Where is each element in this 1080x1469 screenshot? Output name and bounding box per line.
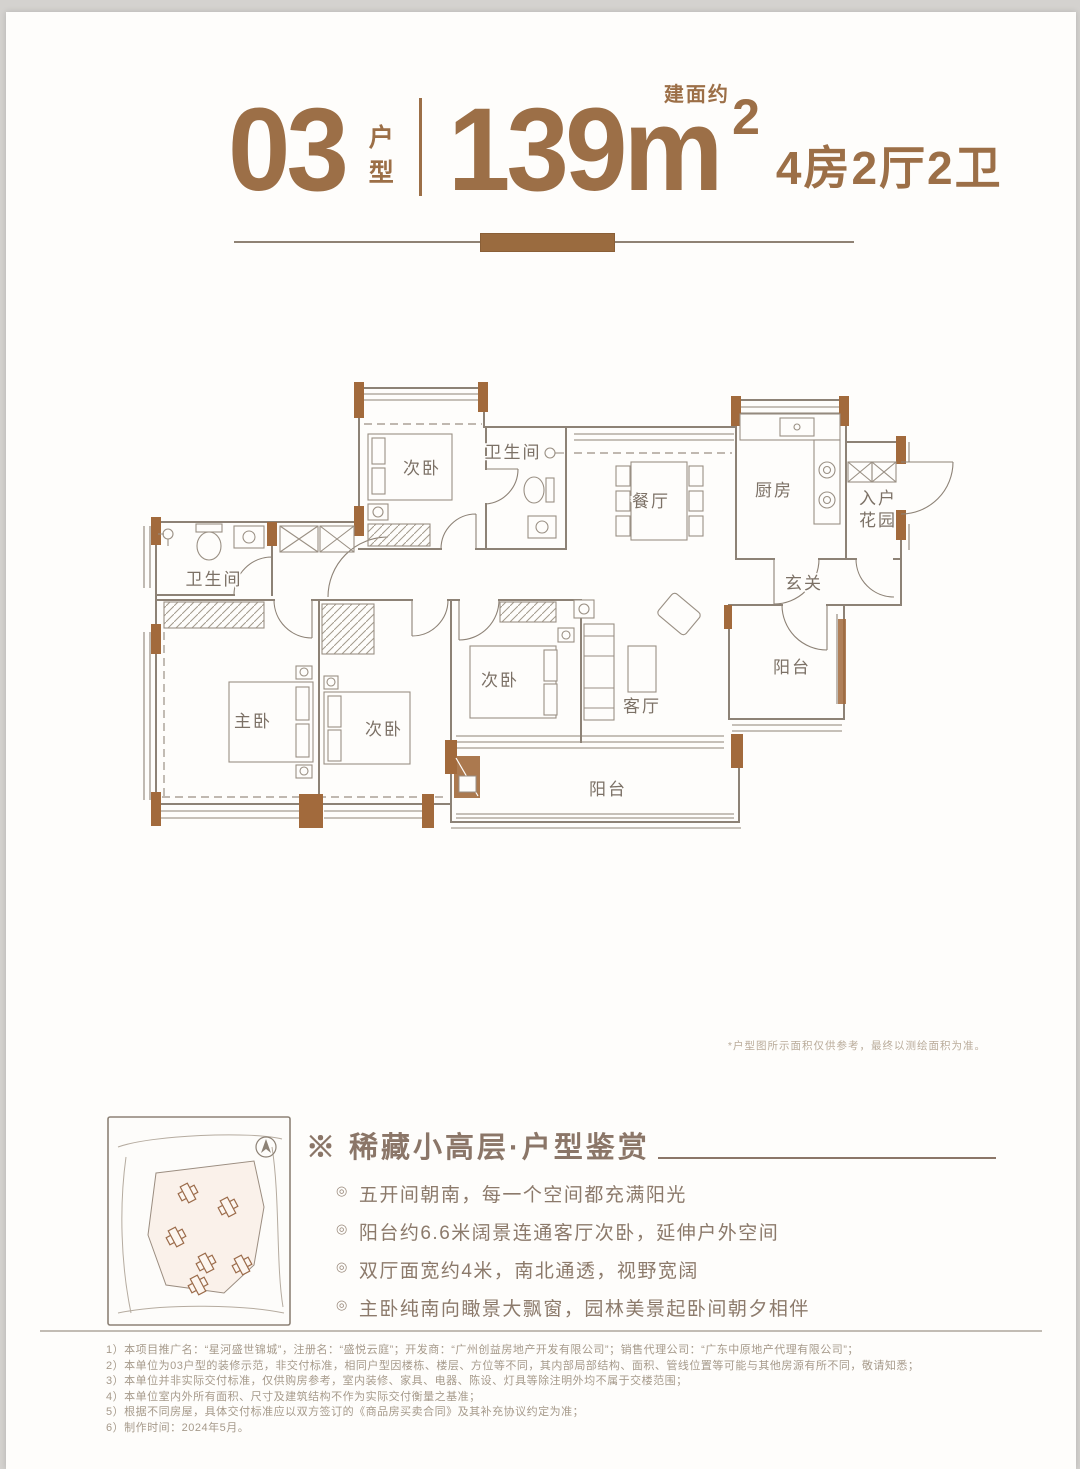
bullet-icon: ◎ [336, 1259, 349, 1275]
bath-left-fixtures [158, 524, 264, 560]
highlight-text: 五开间朝南，每一个空间都充满阳光 [359, 1180, 687, 1207]
room-label-entry-garden-2: 花园 [859, 511, 897, 530]
room-label-balcony-right: 阳台 [773, 658, 811, 677]
room-label-bath-top: 卫生间 [485, 443, 542, 462]
unit-number: 03 [228, 102, 345, 200]
highlight-bullet: ◎阳台约6.6米阔景连通客厅次卧，延伸户外空间 [336, 1218, 810, 1245]
brochure-page: 03 户型 139m 2 建面约 4房2厅2卫 [6, 12, 1076, 1469]
title-underline-bar [480, 233, 615, 252]
highlight-bullet: ◎双厅面宽约4米，南北通透，视野宽阔 [336, 1256, 810, 1283]
room-label-master: 主卧 [234, 712, 272, 731]
room-label-balcony-bottom: 阳台 [589, 780, 627, 799]
highlight-text: 主卧纯南向瞰景大飘窗，园林美景起卧间朝夕相伴 [359, 1294, 810, 1321]
room-label-bedroom-top: 次卧 [403, 459, 441, 478]
room-label-bath-left: 卫生间 [186, 570, 243, 589]
footer-line: 6）制作时间：2024年5月。 [106, 1421, 996, 1437]
area-block: 139m 2 建面约 [448, 92, 760, 200]
header-divider [419, 98, 422, 196]
floor-plan: 次卧 卫生间 餐厅 厨房 入户 花园 玄关 卫生间 主卧 次卧 次卧 客厅 阳台… [134, 374, 974, 871]
bullet-icon: ◎ [336, 1221, 349, 1237]
kitchen-fixtures [740, 414, 840, 524]
footer-line: 1）本项目推广名：“星河盛世锦城”，注册名：“盛悦云庭”；开发商：“广州创益房地… [106, 1343, 996, 1359]
header: 03 户型 139m 2 建面约 4房2厅2卫 [228, 92, 1003, 200]
highlight-bullet: ◎主卧纯南向瞰景大飘窗，园林美景起卧间朝夕相伴 [336, 1294, 810, 1321]
footer-line: 4）本单位室内外所有面积、尺寸及建筑结构不作为实际交付衡量之基准； [106, 1390, 996, 1406]
highlights-list: ◎五开间朝南，每一个空间都充满阳光 ◎阳台约6.6米阔景连通客厅次卧，延伸户外空… [336, 1180, 810, 1332]
highlights-header: ※ 稀藏小高层·户型鉴赏 [306, 1124, 996, 1166]
highlights-rule [658, 1157, 996, 1159]
highlight-bullet: ◎五开间朝南，每一个空间都充满阳光 [336, 1180, 810, 1207]
room-label-bedroom-mid: 次卧 [365, 720, 403, 739]
room-label-living: 客厅 [623, 697, 661, 716]
unit-label: 户型 [361, 124, 397, 194]
footer-line: 3）本单位并非实际交付标准，仅供购房参考，室内装修、家具、电器、陈设、灯具等除注… [106, 1374, 996, 1390]
floor-plan-drawing: 次卧 卫生间 餐厅 厨房 入户 花园 玄关 卫生间 主卧 次卧 次卧 客厅 阳台… [134, 374, 974, 866]
hall-cabinets [280, 526, 354, 552]
room-label-entry-garden-1: 入户 [859, 489, 897, 508]
bullet-icon: ◎ [336, 1183, 349, 1199]
plan-note: *户型图所示面积仅供参考，最终以测绘面积为准。 [728, 1038, 986, 1053]
layout-description: 4房2厅2卫 [776, 132, 1003, 198]
footer-line: 5）根据不同房屋，具体交付标准应以双方签订的《商品房买卖合同》及其补充协议约定为… [106, 1405, 996, 1421]
bullet-icon: ◎ [336, 1297, 349, 1313]
footer-line: 2）本单位为03户型的装修示范，非交付标准，相同户型因楼栋、楼层、方位等不同，其… [106, 1359, 996, 1375]
footer-divider [40, 1330, 1042, 1332]
area-value: 139m [448, 102, 720, 200]
utility-cabinet [454, 756, 480, 798]
footer-disclaimer: 1）本项目推广名：“星河盛世锦城”，注册名：“盛悦云庭”；开发商：“广州创益房地… [106, 1343, 996, 1437]
room-label-foyer: 玄关 [785, 574, 823, 593]
room-label-kitchen: 厨房 [755, 481, 793, 500]
site-map [106, 1115, 292, 1332]
highlights-title: ※ 稀藏小高层·户型鉴赏 [306, 1124, 650, 1166]
area-note: 建面约 [664, 78, 730, 107]
room-label-bedroom-right: 次卧 [481, 671, 519, 690]
entry-cabinets [848, 462, 896, 482]
highlight-text: 双厅面宽约4米，南北通透，视野宽阔 [359, 1256, 699, 1283]
highlight-text: 阳台约6.6米阔景连通客厅次卧，延伸户外空间 [359, 1218, 779, 1245]
area-superscript: 2 [732, 92, 760, 142]
room-label-dining: 餐厅 [632, 492, 670, 511]
